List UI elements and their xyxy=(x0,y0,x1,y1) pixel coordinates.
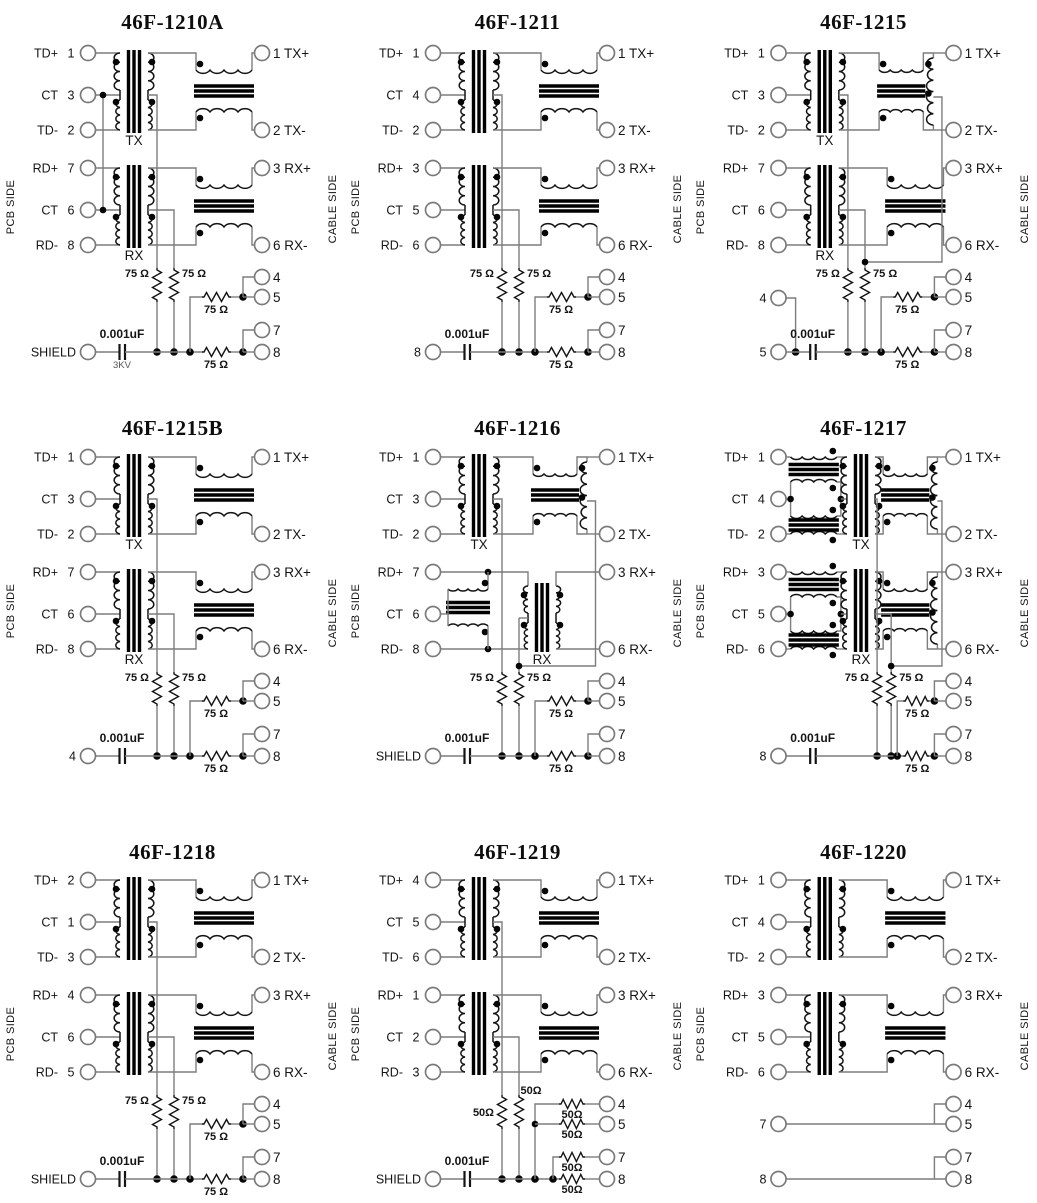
pin-terminal xyxy=(600,527,615,542)
schematic-canvas: TD+1CT3TD-2RD+7CT6RD-81 TX+2 TX-3 RX+6 R… xyxy=(345,400,690,800)
bottom-pins: 45 xyxy=(759,291,799,360)
junction-dot xyxy=(113,1041,120,1048)
label: TD- xyxy=(382,951,403,965)
label: 5 xyxy=(965,694,973,709)
label: 3 xyxy=(68,951,75,965)
junction-dot xyxy=(579,494,586,501)
junction-dot xyxy=(494,503,501,510)
junction-dot xyxy=(880,115,887,122)
pin-terminal xyxy=(771,345,786,360)
resistor xyxy=(893,348,922,357)
junction-dot xyxy=(840,463,847,470)
pin-terminal xyxy=(255,749,270,764)
junction-dot xyxy=(197,580,204,587)
label: 6 RX- xyxy=(273,1065,308,1080)
label: 1 TX+ xyxy=(965,46,1001,61)
label: RD- xyxy=(726,643,748,657)
pin-terminal xyxy=(771,749,786,764)
label: RD+ xyxy=(378,162,403,176)
pin-terminal xyxy=(946,46,961,61)
junction-dot xyxy=(787,611,794,618)
label: TX xyxy=(852,537,869,552)
junction-dot xyxy=(542,176,549,183)
label: CABLE SIDE xyxy=(327,1002,339,1071)
label: 75 Ω xyxy=(125,672,149,684)
junction-dot xyxy=(458,99,465,106)
label: RD- xyxy=(36,643,58,657)
pin-terminal xyxy=(946,749,961,764)
junction-dot xyxy=(884,634,891,641)
pin-terminal xyxy=(946,988,961,1003)
label: 4 xyxy=(413,89,420,103)
junction-dot xyxy=(579,465,586,472)
junction-dot xyxy=(542,1057,549,1064)
junction-dot xyxy=(542,942,549,949)
label: 1 TX+ xyxy=(273,873,309,888)
label: CT xyxy=(732,493,749,507)
schematic-cell-46F-1216: 46F-1216TD+1CT3TD-2RD+7CT6RD-81 TX+2 TX-… xyxy=(345,400,690,800)
label: TD- xyxy=(727,951,748,965)
pin-terminal xyxy=(600,46,615,61)
label: 6 xyxy=(413,239,420,253)
junction-dot xyxy=(840,1041,847,1048)
resistor xyxy=(202,752,231,761)
pin-terminal xyxy=(426,161,441,176)
bottom-pins: 78 xyxy=(759,1117,786,1187)
pin-terminal xyxy=(946,270,961,285)
junction-dot xyxy=(830,507,837,514)
label: 3 RX+ xyxy=(273,565,311,580)
label: 4 xyxy=(68,989,75,1003)
junction-dot xyxy=(888,1057,895,1064)
junction-dot xyxy=(197,230,204,237)
label: 6 xyxy=(413,608,420,622)
label: 3 RX+ xyxy=(618,161,656,176)
label: 0.001uF xyxy=(790,731,835,745)
label: 6 xyxy=(758,1066,765,1080)
pin-terminal xyxy=(771,873,786,888)
pin-terminal xyxy=(771,291,786,306)
junction-dot xyxy=(100,92,107,99)
label: TD+ xyxy=(379,874,403,888)
label: TD- xyxy=(37,951,58,965)
left-pins: TD+1CT4TD-2RD+3CT5RD-6 xyxy=(723,450,786,657)
resistor xyxy=(903,697,929,706)
pin-terminal xyxy=(771,161,786,176)
rx-channel: RX xyxy=(786,165,946,263)
junction-dot xyxy=(494,886,501,893)
label: TD+ xyxy=(724,47,748,61)
label: 5 xyxy=(273,694,281,709)
termination-network: 50Ω50Ω0.001uF50Ω50Ω50Ω50Ω xyxy=(441,922,600,1196)
label: 0.001uF xyxy=(445,327,490,341)
junction-dot xyxy=(830,600,837,607)
junction-dot xyxy=(840,886,847,893)
resistor xyxy=(559,1153,585,1162)
pin-terminal xyxy=(771,607,786,622)
label: 6 RX- xyxy=(965,642,1000,657)
label: 5 xyxy=(413,916,420,930)
pin-terminal xyxy=(600,270,615,285)
pin-terminal xyxy=(771,1117,786,1132)
label: 4 xyxy=(273,270,281,285)
left-pins: TD+4CT5TD-6RD+1CT2RD-3 xyxy=(378,873,441,1080)
pin-terminal xyxy=(426,873,441,888)
resistor xyxy=(547,348,576,357)
label: 2 TX- xyxy=(965,950,998,965)
label: 2 TX- xyxy=(965,527,998,542)
label: 4 xyxy=(965,270,973,285)
label: 50Ω xyxy=(473,1107,494,1119)
pin-terminal xyxy=(946,1172,961,1187)
label: 75 Ω xyxy=(204,763,228,775)
junction-dot xyxy=(557,592,564,599)
junction-dot xyxy=(458,214,465,221)
termination-network: 75 Ω75 Ω0.001uF75 Ω75 Ω xyxy=(441,95,600,371)
label: 2 xyxy=(758,951,765,965)
label: 2 TX- xyxy=(273,527,306,542)
label: CT xyxy=(41,204,58,218)
label: 8 xyxy=(273,1172,281,1187)
label: 0.001uF xyxy=(445,1154,490,1168)
junction-dot xyxy=(149,214,156,221)
label: 75 Ω xyxy=(125,1095,149,1107)
label: 5 xyxy=(68,1066,75,1080)
junction-dot xyxy=(830,448,837,455)
junction-dot xyxy=(458,1041,465,1048)
pin-terminal xyxy=(946,238,961,253)
label: 1 xyxy=(758,451,765,465)
pin-terminal xyxy=(426,642,441,657)
junction-dot xyxy=(113,463,120,470)
label: TX xyxy=(125,133,142,148)
junction-dot xyxy=(888,663,895,670)
junction-dot xyxy=(876,463,883,470)
pin-terminal xyxy=(255,238,270,253)
pin-terminal xyxy=(255,161,270,176)
pin-terminal xyxy=(600,161,615,176)
pin-terminal xyxy=(426,88,441,103)
label: CT xyxy=(386,608,403,622)
label: 6 RX- xyxy=(618,238,653,253)
pin-terminal xyxy=(81,873,96,888)
pin-terminal xyxy=(426,46,441,61)
pin-terminal xyxy=(255,988,270,1003)
label: 1 TX+ xyxy=(273,46,309,61)
pin-terminal xyxy=(426,607,441,622)
label: 1 TX+ xyxy=(965,450,1001,465)
junction-dot xyxy=(149,926,156,933)
junction-dot xyxy=(494,1001,501,1008)
label: 50Ω xyxy=(561,1162,582,1174)
label: 1 TX+ xyxy=(965,873,1001,888)
bottom-pins: SHIELD xyxy=(376,1172,441,1187)
junction-dot xyxy=(840,618,847,625)
junction-dot xyxy=(494,1041,501,1048)
label: 5 xyxy=(273,290,281,305)
junction-dot xyxy=(149,618,156,625)
label: 75 Ω xyxy=(470,672,494,684)
label: 8 xyxy=(618,1172,626,1187)
schematic-cell-46F-1215B: 46F-1215BTD+1CT3TD-2RD+7CT6RD-81 TX+2 TX… xyxy=(0,400,345,800)
left-pins: TD+1CT3TD-2RD+7CT6RD-8 xyxy=(33,46,96,253)
label: CT xyxy=(386,204,403,218)
pin-terminal xyxy=(255,323,270,338)
part-number-title: 46F-1215B xyxy=(0,416,345,441)
label: 75 Ω xyxy=(204,359,228,371)
pin-terminal xyxy=(255,727,270,742)
pin-terminal xyxy=(255,345,270,360)
pin-terminal xyxy=(600,345,615,360)
resistor xyxy=(893,293,922,302)
pin-terminal xyxy=(426,123,441,138)
junction-dot xyxy=(542,61,549,68)
junction-dot xyxy=(803,99,810,106)
label: 6 RX- xyxy=(965,1065,1000,1080)
label: 7 xyxy=(413,566,420,580)
label: TX xyxy=(125,537,142,552)
label: 6 xyxy=(758,643,765,657)
termination-network: 75 Ω75 Ω0.001uF75 Ω75 Ω xyxy=(96,499,255,775)
label: 1 xyxy=(413,989,420,1003)
schematic-canvas: TD+1CT3TD-2RD+7CT6RD-81 TX+2 TX-3 RX+6 R… xyxy=(0,400,345,800)
label: RD- xyxy=(381,239,403,253)
pin-terminal xyxy=(946,1097,961,1112)
label: RD- xyxy=(36,1066,58,1080)
schematic-cell-46F-1218: 46F-1218TD+2CT1TD-3RD+4CT6RD-51 TX+2 TX-… xyxy=(0,800,345,1203)
label: CT xyxy=(732,89,749,103)
right-pins: 1 TX+2 TX-3 RX+6 RX-4578 xyxy=(255,873,312,1188)
label: 6 RX- xyxy=(965,238,1000,253)
label: 2 TX- xyxy=(273,950,306,965)
pin-terminal xyxy=(600,1117,615,1132)
pin-terminal xyxy=(771,492,786,507)
junction-dot xyxy=(458,886,465,893)
pin-terminal xyxy=(771,88,786,103)
junction-dot xyxy=(494,926,501,933)
pin-terminal xyxy=(81,1065,96,1080)
right-pins: 1 TX+2 TX-3 RX+6 RX-4578 xyxy=(255,46,312,361)
label: RD- xyxy=(726,1066,748,1080)
label: RX xyxy=(125,652,144,667)
junction-dot xyxy=(925,61,932,68)
junction-dot xyxy=(888,888,895,895)
label: 1 xyxy=(68,916,75,930)
pin-terminal xyxy=(81,915,96,930)
label: RD+ xyxy=(33,162,58,176)
label: TD+ xyxy=(379,451,403,465)
pin-terminal xyxy=(600,727,615,742)
label: 0.001uF xyxy=(790,327,835,341)
schematic-drawing: TD+2CT1TD-3RD+4CT6RD-51 TX+2 TX-3 RX+6 R… xyxy=(5,873,339,1199)
label: 6 RX- xyxy=(273,238,308,253)
label: 2 xyxy=(68,528,75,542)
resistor xyxy=(547,752,576,761)
label: CT xyxy=(732,1031,749,1045)
pin-terminal xyxy=(81,450,96,465)
label: PCB SIDE xyxy=(5,584,17,639)
label: 50Ω xyxy=(561,1129,582,1141)
junction-dot xyxy=(197,115,204,122)
label: CT xyxy=(732,204,749,218)
left-pins: TD+1CT3TD-2RD+7CT6RD-8 xyxy=(33,450,96,657)
schematic-canvas: TD+1CT3TD-2RD+7CT6RD-81 TX+2 TX-3 RX+6 R… xyxy=(690,0,1037,400)
pin-terminal xyxy=(255,642,270,657)
junction-dot xyxy=(557,622,564,629)
label: 7 xyxy=(758,162,765,176)
right-pins: 1 TX+2 TX-3 RX+6 RX-4578 xyxy=(600,450,657,765)
label: CABLE SIDE xyxy=(1019,579,1031,648)
label: 4 xyxy=(759,292,766,306)
label: 0.001uF xyxy=(100,327,145,341)
label: 3 xyxy=(68,89,75,103)
left-pins: TD+1CT3TD-2RD+7CT6RD-8 xyxy=(723,46,786,253)
resistor xyxy=(559,1100,585,1109)
junction-dot xyxy=(830,563,837,570)
pin-terminal xyxy=(255,290,270,305)
schematic-cell-46F-1217: 46F-1217TD+1CT4TD-2RD+3CT5RD-61 TX+2 TX-… xyxy=(690,400,1037,800)
schematic-cell-46F-1215: 46F-1215TD+1CT3TD-2RD+7CT6RD-81 TX+2 TX-… xyxy=(690,0,1037,400)
bottom-pins: 4 xyxy=(69,749,95,764)
pin-terminal xyxy=(600,674,615,689)
label: 75 Ω xyxy=(873,268,897,280)
junction-dot xyxy=(840,174,847,181)
pin-terminal xyxy=(946,161,961,176)
label: 75 Ω xyxy=(204,1131,228,1143)
junction-dot xyxy=(840,99,847,106)
label: 2 TX- xyxy=(273,123,306,138)
label: 0.001uF xyxy=(100,731,145,745)
pin-terminal xyxy=(426,915,441,930)
junction-dot xyxy=(458,926,465,933)
junction-dot xyxy=(149,174,156,181)
label: 4 xyxy=(618,1097,626,1112)
junction-dot xyxy=(830,652,837,659)
rx-channel xyxy=(96,992,255,1075)
pin-terminal xyxy=(946,694,961,709)
termination-network xyxy=(786,1104,946,1179)
label: 1 TX+ xyxy=(273,450,309,465)
pin-terminal xyxy=(81,88,96,103)
tx-channel: TX xyxy=(96,454,255,552)
label: 7 xyxy=(273,323,281,338)
part-number-title: 46F-1216 xyxy=(345,416,690,441)
left-pins: TD+2CT1TD-3RD+4CT6RD-5 xyxy=(33,873,96,1080)
label: 3 RX+ xyxy=(965,565,1003,580)
bottom-pins: SHIELD xyxy=(376,749,441,764)
label: 75 Ω xyxy=(845,672,869,684)
label: 2 TX- xyxy=(965,123,998,138)
pin-terminal xyxy=(81,345,96,360)
pin-terminal xyxy=(771,565,786,580)
pin-terminal xyxy=(426,988,441,1003)
junction-dot xyxy=(458,1001,465,1008)
label: 5 xyxy=(618,694,626,709)
rx-channel: RX xyxy=(96,569,255,667)
label: 75 Ω xyxy=(549,304,573,316)
pin-terminal xyxy=(600,873,615,888)
tx-channel: TX xyxy=(786,50,946,148)
pin-terminal xyxy=(426,565,441,580)
junction-dot xyxy=(113,214,120,221)
label: 7 xyxy=(68,566,75,580)
junction-dot xyxy=(113,578,120,585)
junction-dot xyxy=(840,578,847,585)
resistor xyxy=(887,672,896,706)
label: 8 xyxy=(413,643,420,657)
junction-dot xyxy=(197,942,204,949)
junction-dot xyxy=(884,465,891,472)
label: 5 xyxy=(965,1117,973,1132)
label: RD- xyxy=(381,643,403,657)
junction-dot xyxy=(929,580,936,587)
part-number-title: 46F-1210A xyxy=(0,10,345,35)
left-pins: TD+1CT4TD-2RD+3CT5RD-6 xyxy=(723,873,786,1080)
label: 1 TX+ xyxy=(618,46,654,61)
label: CABLE SIDE xyxy=(1019,1002,1031,1071)
label: CT xyxy=(386,493,403,507)
label: 50Ω xyxy=(561,1184,582,1196)
label: 75 Ω xyxy=(895,304,919,316)
schematic-drawing: TD+1CT4TD-2RD+3CT5RD-61 TX+2 TX-3 RX+6 R… xyxy=(350,46,684,372)
label: 5 xyxy=(618,1117,626,1132)
junction-dot xyxy=(113,886,120,893)
junction-dot xyxy=(149,886,156,893)
schematic-cell-46F-1219: 46F-1219TD+4CT5TD-6RD+1CT2RD-31 TX+2 TX-… xyxy=(345,800,690,1203)
label: RX xyxy=(533,652,552,667)
label: RD+ xyxy=(378,989,403,1003)
junction-dot xyxy=(840,503,847,510)
label: TD- xyxy=(727,528,748,542)
junction-dot xyxy=(803,174,810,181)
junction-dot xyxy=(534,465,541,472)
label: TD+ xyxy=(379,47,403,61)
right-pins: 1 TX+2 TX-3 RX+6 RX-4578 xyxy=(946,46,1003,360)
pin-terminal xyxy=(81,203,96,218)
junction-dot xyxy=(840,214,847,221)
label: 8 xyxy=(273,345,281,360)
label: SHIELD xyxy=(376,750,421,764)
label: TD- xyxy=(37,124,58,138)
pin-terminal xyxy=(426,238,441,253)
resistor xyxy=(843,268,852,302)
pin-terminal xyxy=(946,527,961,542)
pin-terminal xyxy=(600,238,615,253)
junction-dot xyxy=(494,214,501,221)
label: 3 xyxy=(758,566,765,580)
junction-dot xyxy=(862,259,869,266)
label: 50Ω xyxy=(520,1085,541,1097)
label: 0.001uF xyxy=(100,1154,145,1168)
junction-dot xyxy=(113,618,120,625)
pin-terminal xyxy=(946,1065,961,1080)
label: 75 Ω xyxy=(204,1186,228,1198)
label: 3 xyxy=(758,989,765,1003)
label: 3 xyxy=(68,493,75,507)
resistor xyxy=(170,1095,179,1129)
pin-terminal xyxy=(426,527,441,542)
pin-terminal xyxy=(81,607,96,622)
label: 2 xyxy=(413,1031,420,1045)
label: 0.001uF xyxy=(445,731,490,745)
pin-terminal xyxy=(426,1065,441,1080)
junction-dot xyxy=(149,1041,156,1048)
label: 8 xyxy=(759,1173,766,1187)
label: 3 xyxy=(413,493,420,507)
label: TD+ xyxy=(724,451,748,465)
label: 2 xyxy=(68,124,75,138)
label: 4 xyxy=(413,874,420,888)
